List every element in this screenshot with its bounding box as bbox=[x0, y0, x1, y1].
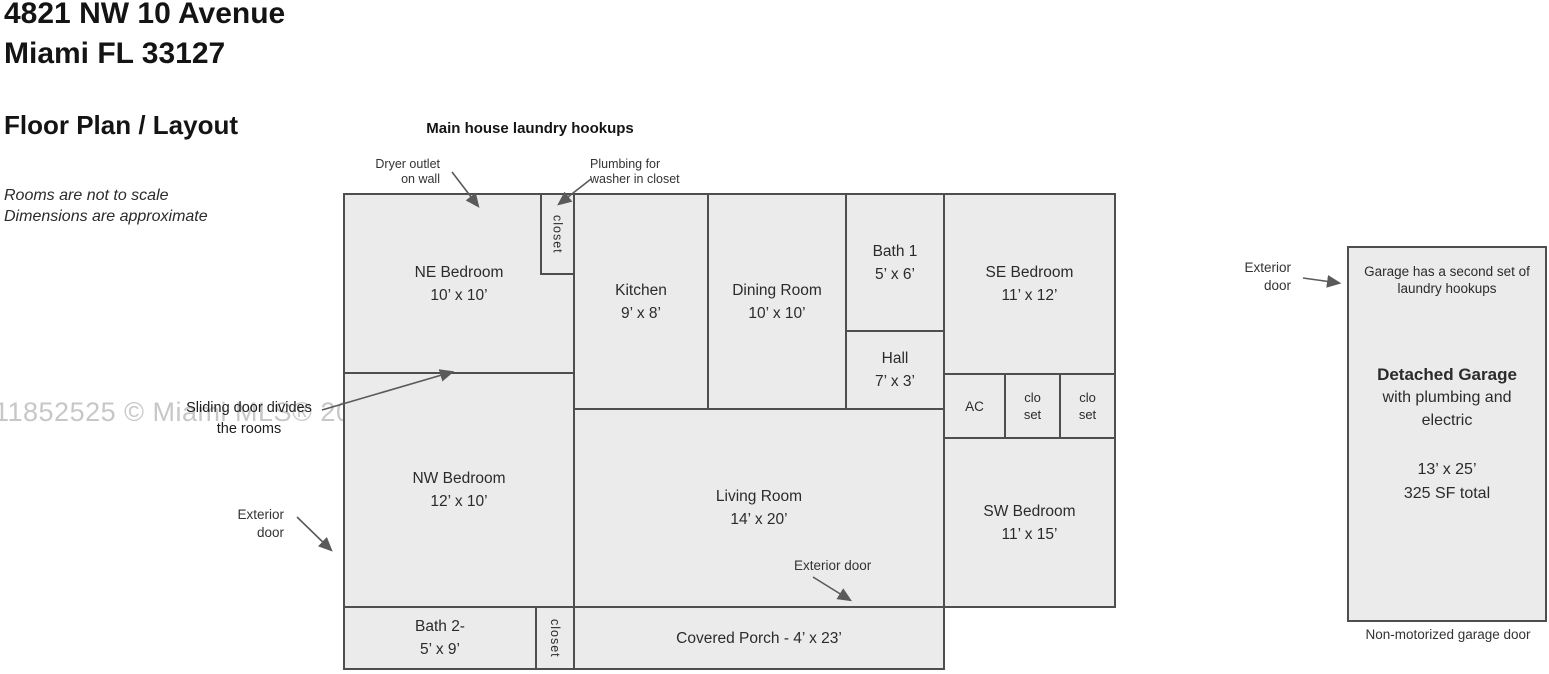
room-name: SE Bedroom bbox=[986, 261, 1074, 284]
room-name: Living Room bbox=[716, 485, 802, 508]
room-name: closet bbox=[551, 215, 565, 254]
garage-sf-total: 325 SF total bbox=[1349, 482, 1545, 506]
room-name: AC bbox=[965, 398, 984, 415]
room-closet-b: clo set bbox=[1059, 373, 1116, 439]
sliding-door-label: Sliding door divides the rooms bbox=[168, 398, 330, 440]
scale-note: Rooms are not to scale Dimensions are ap… bbox=[4, 185, 208, 227]
garage-laundry-note: Garage has a second set of laundry hooku… bbox=[1349, 263, 1545, 297]
page-title: Floor Plan / Layout bbox=[4, 110, 238, 141]
dryer-outlet-line-1: Dryer outlet bbox=[348, 157, 440, 172]
garage-dims: 13’ x 25’ bbox=[1349, 458, 1545, 482]
room-name-line-1: clo bbox=[1079, 389, 1096, 406]
room-name-line-2: set bbox=[1079, 406, 1096, 423]
washer-plumbing-line-2: washer in closet bbox=[590, 172, 720, 187]
room-label: Kitchen 9’ x 8’ bbox=[615, 279, 667, 325]
room-label: clo set bbox=[1079, 389, 1096, 423]
garage-sub-line-2: electric bbox=[1349, 409, 1545, 432]
room-name: Covered Porch - 4’ x 23’ bbox=[676, 627, 842, 650]
room-dims: 14’ x 20’ bbox=[716, 508, 802, 531]
garage-title: Detached Garage bbox=[1349, 363, 1545, 386]
room-dims: 11’ x 15’ bbox=[983, 523, 1075, 546]
room-bath-2: Bath 2- 5’ x 9’ bbox=[343, 606, 537, 670]
exterior-door-living-label: Exterior door bbox=[794, 557, 871, 575]
garage-title-block: Detached Garage with plumbing and electr… bbox=[1349, 363, 1545, 432]
room-name: SW Bedroom bbox=[983, 500, 1075, 523]
room-dims: 11’ x 12’ bbox=[986, 284, 1074, 307]
sliding-door-line-1: Sliding door divides bbox=[168, 398, 330, 419]
garage-note-line-2: laundry hookups bbox=[1349, 280, 1545, 297]
exterior-door-nw-arrow bbox=[297, 517, 331, 550]
room-dims: 12’ x 10’ bbox=[412, 490, 505, 513]
room-ac: AC bbox=[943, 373, 1006, 439]
room-hall: Hall 7’ x 3’ bbox=[845, 330, 945, 410]
room-label: Living Room 14’ x 20’ bbox=[716, 485, 802, 531]
dryer-outlet-label: Dryer outlet on wall bbox=[348, 157, 440, 187]
room-label: Hall 7’ x 3’ bbox=[875, 347, 915, 393]
room-name: Dining Room bbox=[732, 279, 822, 302]
scale-note-line-2: Dimensions are approximate bbox=[4, 206, 208, 227]
room-name: Bath 2- bbox=[415, 615, 465, 638]
room-name: Hall bbox=[875, 347, 915, 370]
room-name: NW Bedroom bbox=[412, 467, 505, 490]
room-dims: 7’ x 3’ bbox=[875, 370, 915, 393]
exterior-door-nw-line-1: Exterior bbox=[212, 506, 284, 524]
room-label: NW Bedroom 12’ x 10’ bbox=[412, 467, 505, 513]
room-name-line-2: set bbox=[1024, 406, 1041, 423]
room-name: closet bbox=[548, 619, 562, 658]
garage-dims-block: 13’ x 25’ 325 SF total bbox=[1349, 458, 1545, 506]
room-living-room: Living Room 14’ x 20’ bbox=[573, 408, 945, 608]
room-name: Kitchen bbox=[615, 279, 667, 302]
floor-plan-canvas: 4821 NW 10 Avenue Miami FL 33127 Floor P… bbox=[0, 0, 1549, 674]
exterior-door-garage-label: Exterior door bbox=[1219, 259, 1291, 295]
address-line-2: Miami FL 33127 bbox=[4, 34, 285, 74]
exterior-door-nw-line-2: door bbox=[212, 524, 284, 542]
garage-note-line-1: Garage has a second set of bbox=[1349, 263, 1545, 280]
room-dims: 5’ x 9’ bbox=[415, 638, 465, 661]
room-bath-1: Bath 1 5’ x 6’ bbox=[845, 193, 945, 332]
room-bath2-closet: closet bbox=[535, 606, 575, 670]
room-label: Dining Room 10’ x 10’ bbox=[732, 279, 822, 325]
garage-door-label: Non-motorized garage door bbox=[1350, 626, 1546, 644]
exterior-door-garage-arrow bbox=[1303, 278, 1339, 283]
room-label: Bath 2- 5’ x 9’ bbox=[415, 615, 465, 661]
header: 4821 NW 10 Avenue Miami FL 33127 bbox=[4, 0, 285, 74]
sliding-door-line-2: the rooms bbox=[168, 419, 330, 440]
exterior-door-nw-label: Exterior door bbox=[212, 506, 284, 542]
room-label: SE Bedroom 11’ x 12’ bbox=[986, 261, 1074, 307]
room-sw-bedroom: SW Bedroom 11’ x 15’ bbox=[943, 437, 1116, 608]
scale-note-line-1: Rooms are not to scale bbox=[4, 185, 208, 206]
washer-plumbing-line-1: Plumbing for bbox=[590, 157, 720, 172]
washer-plumbing-label: Plumbing for washer in closet bbox=[590, 157, 720, 187]
room-name: NE Bedroom bbox=[415, 261, 504, 284]
room-nw-bedroom: NW Bedroom 12’ x 10’ bbox=[343, 372, 575, 608]
room-dims: 5’ x 6’ bbox=[873, 263, 918, 286]
room-dims: 9’ x 8’ bbox=[615, 302, 667, 325]
room-name: Bath 1 bbox=[873, 240, 918, 263]
laundry-hookups-title: Main house laundry hookups bbox=[422, 120, 638, 137]
room-dining-room: Dining Room 10’ x 10’ bbox=[707, 193, 847, 410]
exterior-door-garage-line-1: Exterior bbox=[1219, 259, 1291, 277]
exterior-door-garage-line-2: door bbox=[1219, 277, 1291, 295]
address-line-1: 4821 NW 10 Avenue bbox=[4, 0, 285, 34]
garage-sub-line-1: with plumbing and bbox=[1349, 386, 1545, 409]
room-dims: 10’ x 10’ bbox=[415, 284, 504, 307]
room-label: Bath 1 5’ x 6’ bbox=[873, 240, 918, 286]
room-closet-a: clo set bbox=[1004, 373, 1061, 439]
room-laundry-closet: closet bbox=[540, 193, 575, 275]
room-label: NE Bedroom 10’ x 10’ bbox=[415, 261, 504, 307]
dryer-outlet-line-2: on wall bbox=[348, 172, 440, 187]
room-label: SW Bedroom 11’ x 15’ bbox=[983, 500, 1075, 546]
room-label: clo set bbox=[1024, 389, 1041, 423]
room-name-line-1: clo bbox=[1024, 389, 1041, 406]
room-kitchen: Kitchen 9’ x 8’ bbox=[573, 193, 709, 410]
room-se-bedroom: SE Bedroom 11’ x 12’ bbox=[943, 193, 1116, 375]
room-detached-garage: Garage has a second set of laundry hooku… bbox=[1347, 246, 1547, 622]
room-dims: 10’ x 10’ bbox=[732, 302, 822, 325]
room-covered-porch: Covered Porch - 4’ x 23’ bbox=[573, 606, 945, 670]
